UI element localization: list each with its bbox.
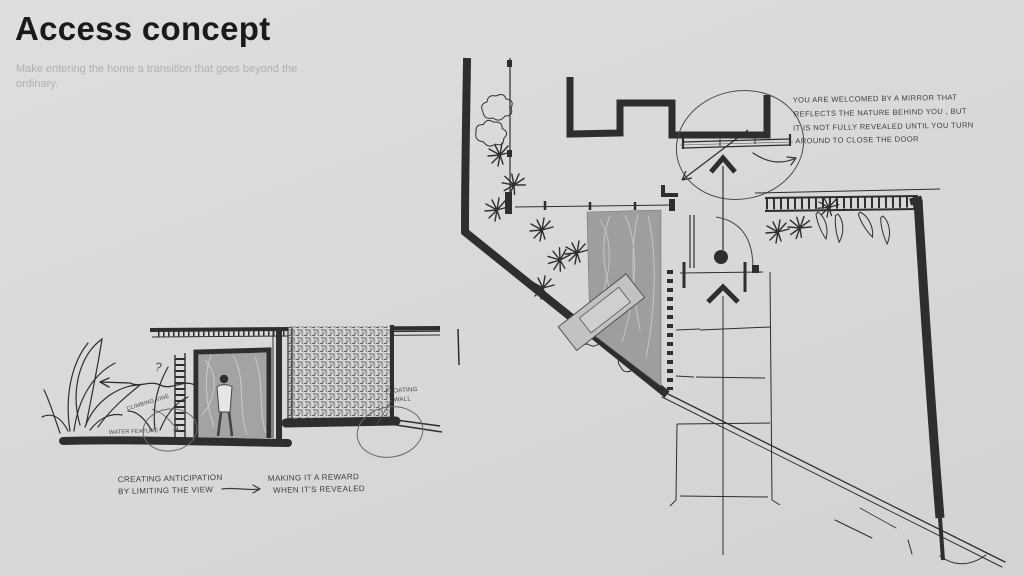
right-boundary-wall [910, 199, 943, 560]
entry-arrow-top [711, 158, 735, 264]
entry-plants [42, 339, 188, 433]
page-title: Access concept [15, 10, 271, 48]
green-wall-band [755, 189, 940, 244]
page-subtitle: Make entering the home a transition that… [16, 62, 316, 92]
low-fence [515, 199, 675, 211]
label-floating-wall: FLOATING WALL [385, 386, 418, 405]
corner-arrow [663, 130, 748, 195]
site-diagonals [662, 392, 1005, 567]
wall-post [276, 329, 282, 441]
note-arrow [753, 153, 796, 165]
door-pivot-dot [714, 250, 728, 264]
mirror-niche-wall [570, 77, 767, 135]
ground-line [63, 440, 288, 443]
floating-wall [286, 325, 442, 432]
plan-note: YOU ARE WELCOMED BY A MIRROR THAT REFLEC… [793, 90, 974, 148]
caption-reward: MAKING IT A REWARD WHEN IT'S REVEALED [268, 471, 365, 497]
caption-arrow [222, 485, 260, 493]
slatted-column [175, 353, 185, 438]
elevation-sketch [40, 305, 460, 520]
hanging-plants [766, 197, 892, 244]
caption-anticipation: CREATING ANTICIPATION BY LIMITING THE VI… [118, 472, 223, 498]
stepping-path [670, 272, 780, 506]
caption-anticipation-line2: BY LIMITING THE VIEW [118, 484, 223, 498]
courtyard [558, 210, 661, 386]
slide: Access concept Make entering the home a … [0, 0, 1024, 576]
doorway [196, 350, 269, 438]
caption-reward-line2: WHEN IT'S REVEALED [273, 483, 365, 497]
